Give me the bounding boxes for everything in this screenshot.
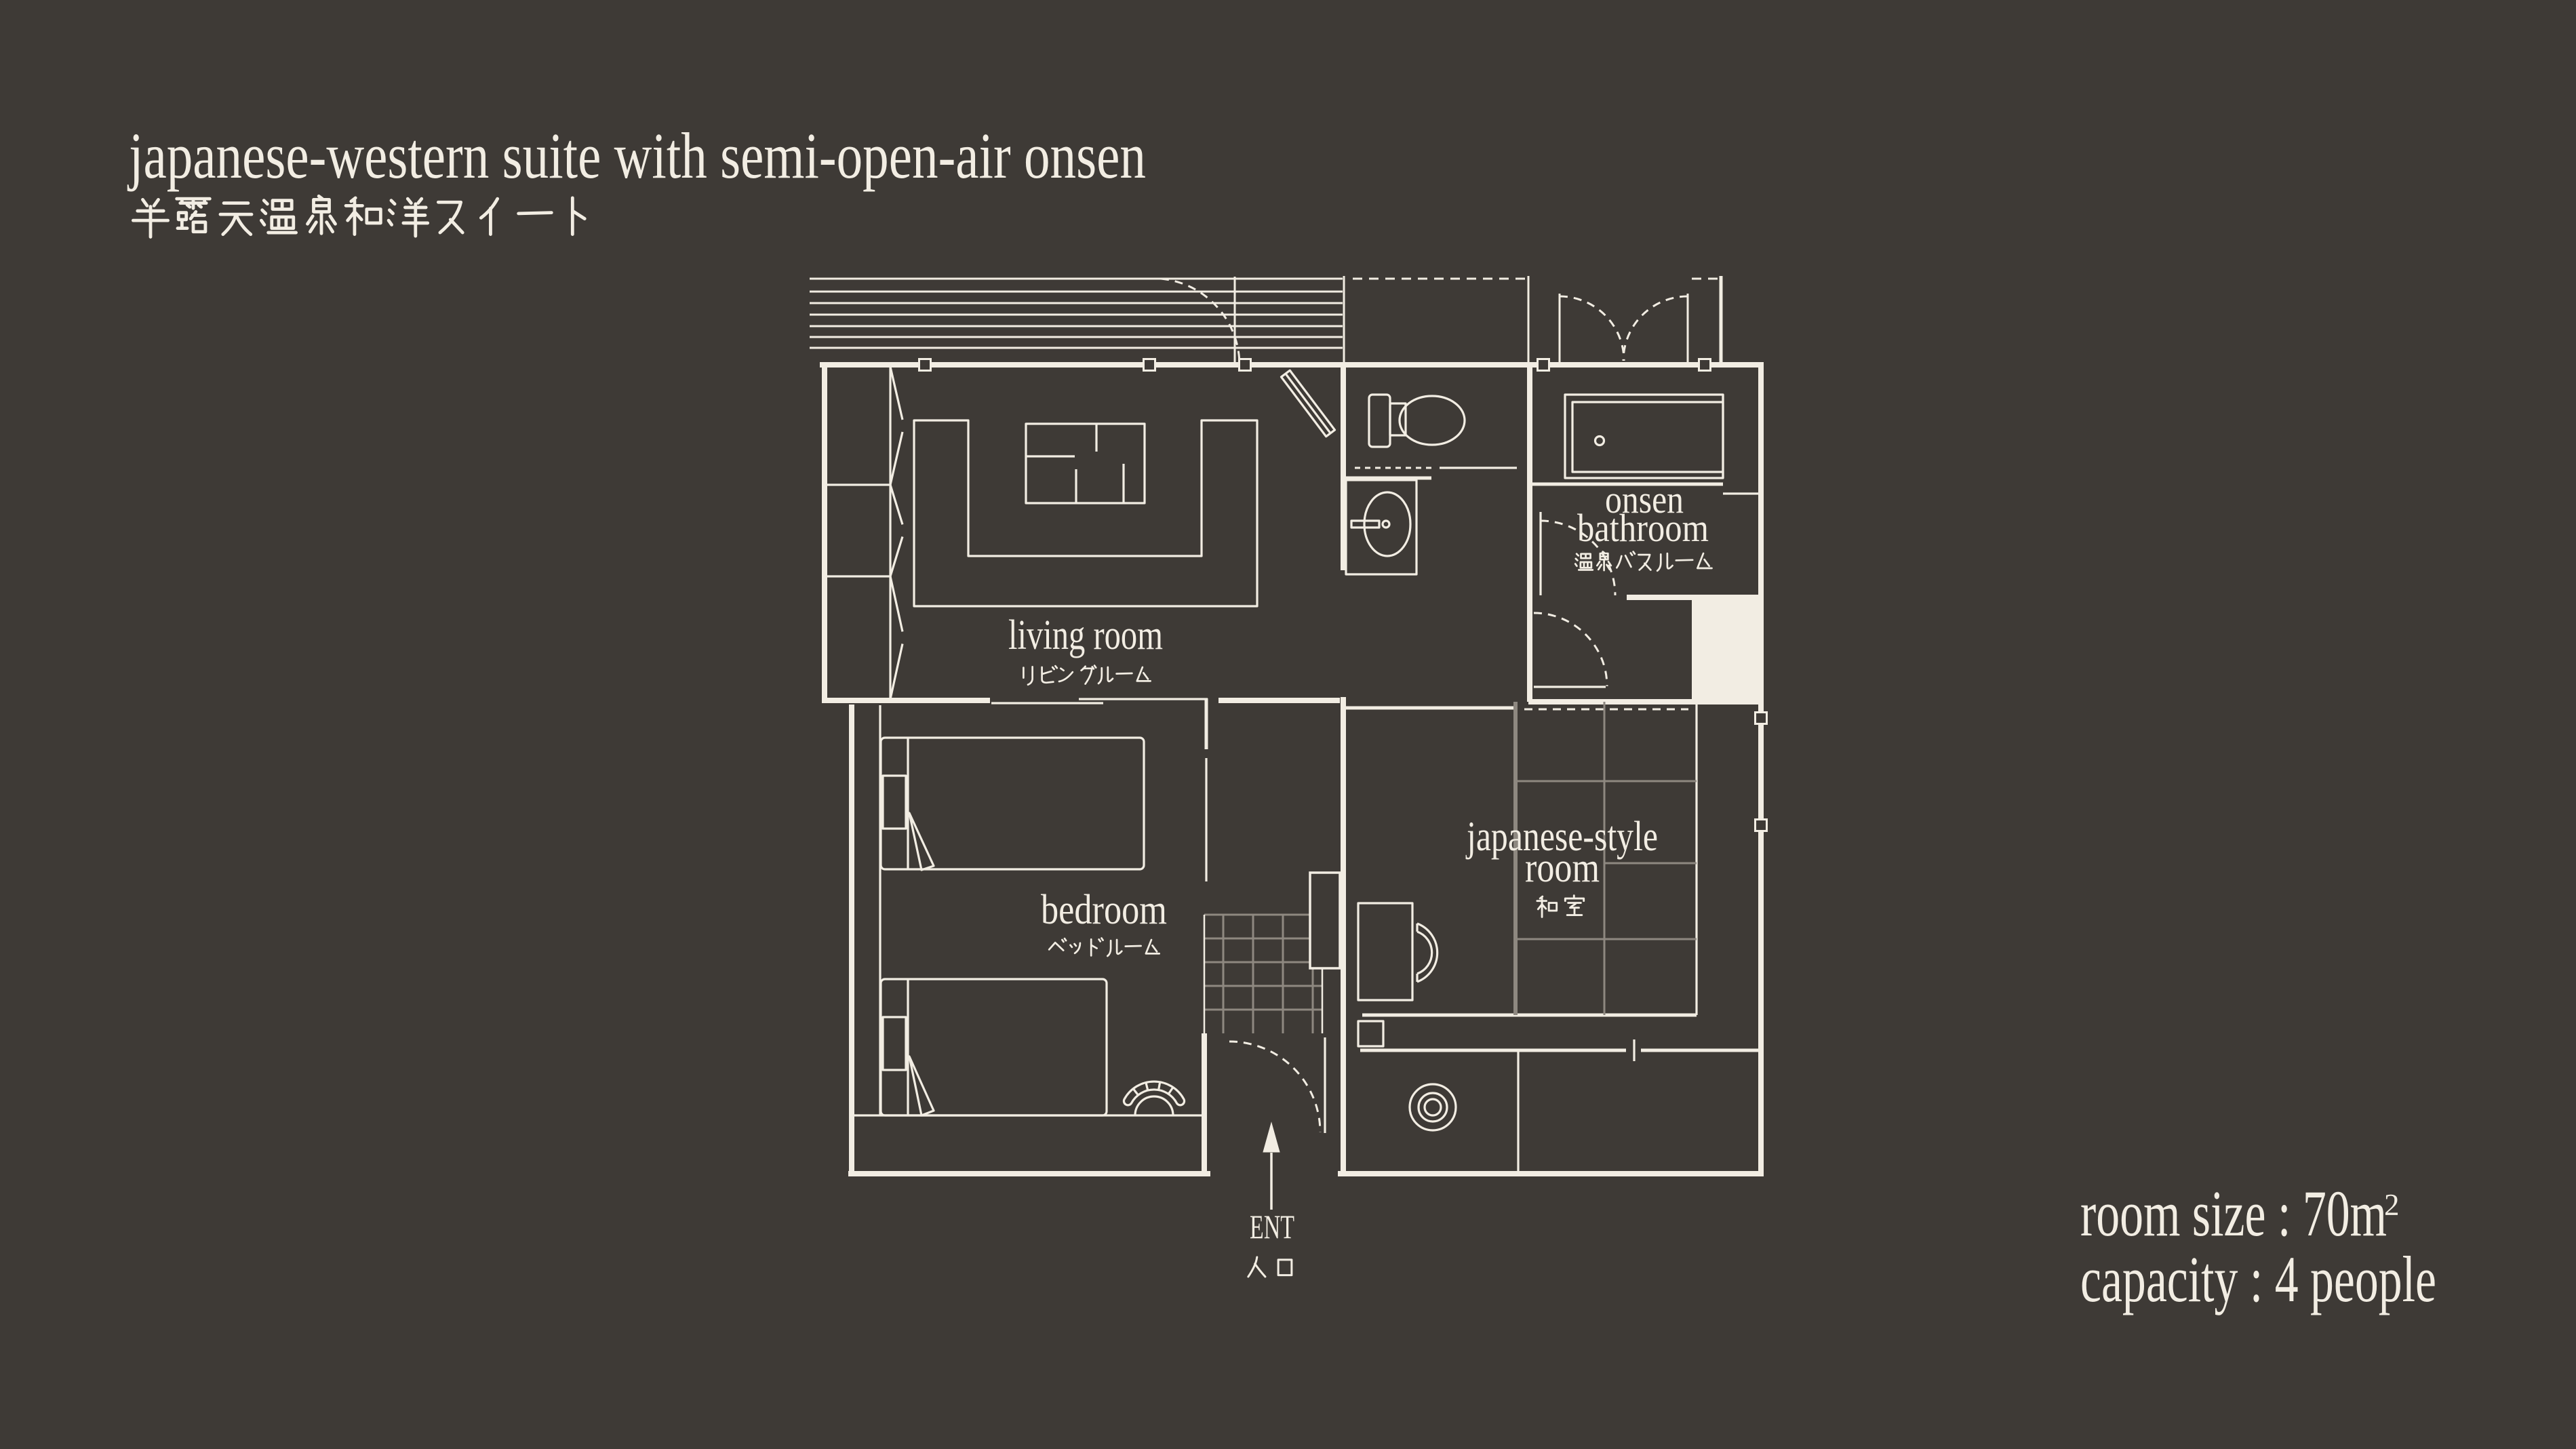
svg-text:ENT: ENT (1250, 1208, 1294, 1246)
svg-text:japanese-western suite with se: japanese-western suite with semi-open-ai… (127, 119, 1146, 192)
svg-text:capacity : 4 people: capacity : 4 people (2080, 1243, 2436, 1315)
svg-text:living room: living room (1008, 612, 1163, 658)
svg-text:bedroom: bedroom (1041, 887, 1167, 933)
svg-text:room size : 70m: room size : 70m (2080, 1177, 2387, 1250)
svg-text:bathroom: bathroom (1577, 506, 1709, 550)
svg-text:room: room (1525, 845, 1600, 891)
svg-text:2: 2 (2384, 1188, 2400, 1222)
